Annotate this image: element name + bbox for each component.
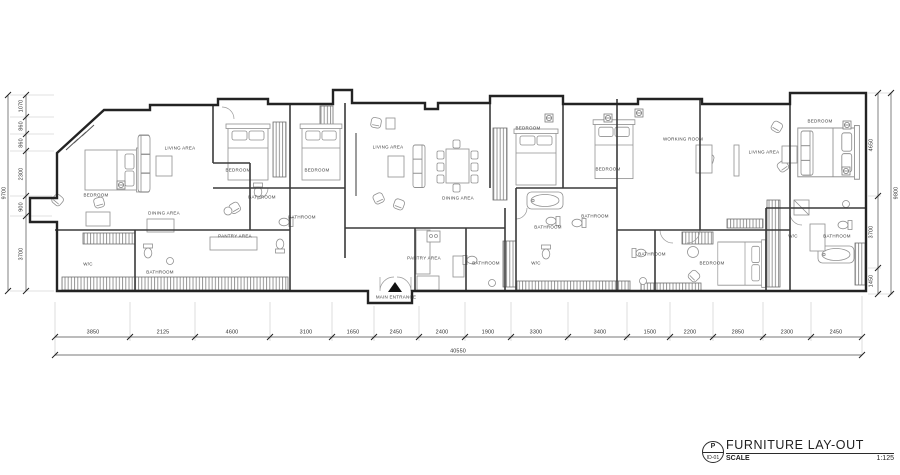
room-label: DINING AREA: [442, 195, 474, 200]
scale-value: 1:125: [876, 455, 894, 462]
dimension-label: 2300: [18, 168, 24, 181]
room-label: BEDROOM: [808, 118, 833, 123]
drawing-title: FURNITURE LAY-OUT: [726, 438, 894, 454]
dining-table-icon: [437, 140, 478, 192]
title-block-main: FURNITURE LAY-OUT SCALE 1:125: [726, 438, 894, 462]
dimension-label: 2200: [684, 329, 697, 335]
room-label: BATHROOM: [534, 224, 562, 229]
room-label: W/C: [788, 233, 797, 238]
room-label: BEDROOM: [226, 167, 251, 172]
entrance-arrow: [388, 282, 402, 292]
dimension-label: 1650: [347, 329, 360, 335]
dimension-label: 3400: [594, 329, 607, 335]
room-label: BEDROOM: [700, 260, 725, 265]
room-label: BATHROOM: [288, 214, 316, 219]
room-label: BATHROOM: [638, 251, 666, 256]
dimension-label: 860: [18, 138, 24, 147]
ceiling-symbol-icon: [117, 109, 851, 189]
dimension-label: 1070: [18, 100, 24, 113]
room-label: LIVING AREA: [165, 145, 196, 150]
bed-icon: [514, 129, 558, 185]
room-label: LIVING AREA: [373, 144, 404, 149]
dimension-label: 2125: [157, 329, 170, 335]
drawing-sheet-number: ID-01: [705, 455, 722, 460]
dimension-label: 3850: [87, 329, 100, 335]
dimension-label: 3700: [868, 226, 874, 239]
dimension-label: 1900: [482, 329, 495, 335]
room-label: BATHROOM: [823, 233, 851, 238]
drawing-discipline-code: P: [703, 443, 723, 450]
dimension-label: 3100: [300, 329, 313, 335]
dimension-label: 9800: [893, 187, 899, 200]
room-label: LIVING AREA: [749, 149, 780, 154]
room-label: BATHROOM: [581, 213, 609, 218]
badge-divider: [703, 452, 723, 453]
dimension-label: 3300: [530, 329, 543, 335]
corner-hatch: [66, 125, 94, 150]
room-label: BATHROOM: [248, 194, 276, 199]
room-label: BEDROOM: [596, 166, 621, 171]
room-label: BEDROOM: [84, 192, 109, 197]
armchair-icon: [687, 269, 701, 283]
armchair-icon: [770, 120, 784, 134]
room-label: BEDROOM: [305, 167, 330, 172]
dimension-label: 2400: [436, 329, 449, 335]
armchair-icon: [393, 198, 406, 211]
armchair-icon: [93, 196, 105, 208]
room-label: W/C: [531, 260, 540, 265]
drawing-number-badge: P ID-01: [702, 441, 724, 463]
room-label: BATHROOM: [472, 260, 500, 265]
scale-row: SCALE 1:125: [726, 455, 894, 462]
room-label: WORKING ROOM: [663, 136, 703, 141]
room-label: PANTRY AREA: [407, 255, 441, 260]
dimension-label: 860: [18, 121, 24, 130]
room-label: DINING AREA: [148, 210, 180, 215]
dimension-label: 900: [18, 202, 24, 211]
room-label: BEDROOM: [516, 125, 541, 130]
dimension-label: 1450: [868, 275, 874, 288]
dimension-label: 2450: [390, 329, 403, 335]
dimension-label: 4650: [868, 139, 874, 152]
dimension-label: 2300: [781, 329, 794, 335]
dimension-label: 4600: [226, 329, 239, 335]
floor-plan-sheet: BEDROOMLIVING AREADINING AREAPANTRY AREA…: [0, 0, 900, 475]
room-label: PANTRY AREA: [218, 233, 252, 238]
scale-label: SCALE: [726, 455, 750, 462]
armchair-icon: [372, 192, 385, 205]
dimension-label: 40550: [450, 348, 466, 354]
room-label: W/C: [83, 261, 92, 266]
dimension-label: 2850: [732, 329, 745, 335]
armchair-icon: [370, 117, 382, 129]
dimension-label: 2450: [830, 329, 843, 335]
dimension-label: 3700: [18, 248, 24, 261]
dimension-label: 9700: [1, 187, 7, 200]
room-label: BATHROOM: [146, 269, 174, 274]
floor-plan-drawing: [0, 0, 900, 475]
bed-icon: [718, 240, 766, 288]
sofa-icon: [801, 131, 813, 175]
bed-icon: [85, 148, 141, 192]
sofa-icon: [413, 145, 425, 188]
bathtub-icon: [527, 192, 563, 209]
sofa-icon: [138, 135, 150, 192]
room-label: MAIN ENTRANCE: [376, 294, 416, 299]
title-block: P ID-01 FURNITURE LAY-OUT SCALE 1:125: [700, 438, 896, 466]
dimension-label: 1500: [644, 329, 657, 335]
